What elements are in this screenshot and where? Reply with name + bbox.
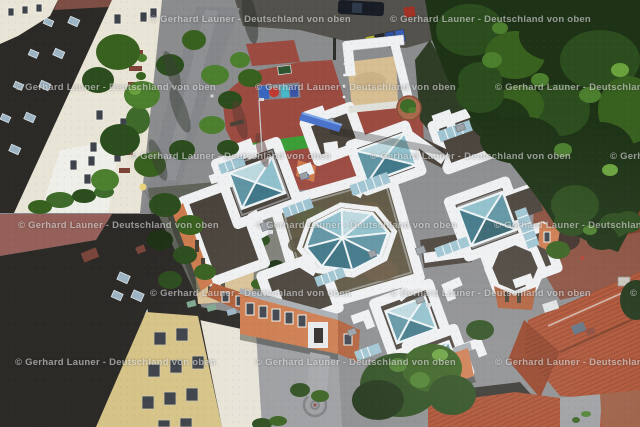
aerial-photo: © Gerhard Launer - Deutschland von oben©… [0,0,640,427]
aerial-scene [0,0,640,427]
haze-overlay [0,0,640,427]
